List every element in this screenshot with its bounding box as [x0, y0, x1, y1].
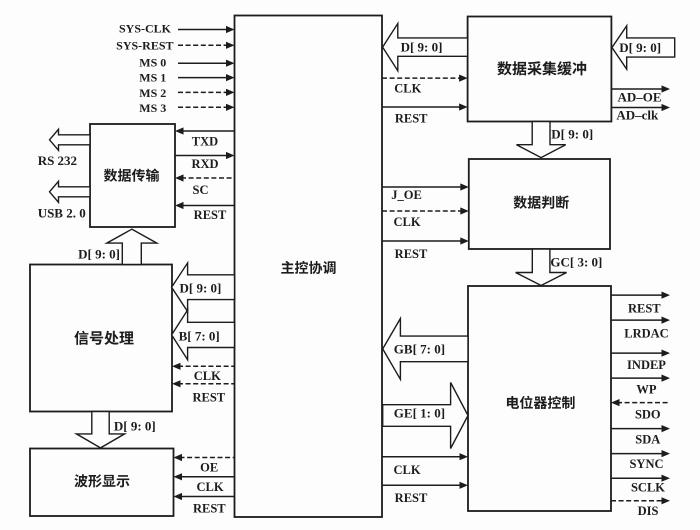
svg-text:RS 232: RS 232 [38, 153, 77, 168]
svg-text:D[ 9: 0]: D[ 9: 0] [401, 40, 443, 55]
svg-text:WP: WP [636, 382, 657, 396]
svg-text:MS 1: MS 1 [139, 70, 166, 84]
svg-text:CLK: CLK [196, 480, 223, 494]
svg-text:RXD: RXD [191, 157, 218, 171]
svg-text:D[ 9: 0]: D[ 9: 0] [114, 419, 156, 434]
svg-text:CLK: CLK [393, 215, 420, 229]
svg-text:D[ 9: 0]: D[ 9: 0] [619, 40, 661, 55]
svg-text:SC: SC [193, 183, 209, 197]
svg-text:REST: REST [395, 112, 428, 126]
svg-text:SDO: SDO [635, 407, 661, 421]
svg-text:GB[ 7: 0]: GB[ 7: 0] [394, 341, 445, 356]
svg-text:D[ 9: 0]: D[ 9: 0] [551, 126, 593, 141]
svg-text:B[ 7: 0]: B[ 7: 0] [179, 329, 220, 344]
svg-text:REST: REST [192, 391, 225, 405]
svg-text:REST: REST [193, 502, 226, 516]
svg-text:MS 3: MS 3 [139, 101, 166, 115]
svg-text:D[ 9: 0]: D[ 9: 0] [78, 247, 120, 262]
svg-text:CLK: CLK [393, 463, 420, 477]
svg-text:SYNC: SYNC [629, 457, 663, 471]
svg-text:D[ 9: 0]: D[ 9: 0] [180, 281, 222, 296]
svg-text:J_OE: J_OE [391, 188, 422, 202]
svg-text:AD–clk: AD–clk [616, 108, 659, 123]
svg-text:OE: OE [200, 461, 218, 475]
svg-text:SYS-REST: SYS-REST [116, 39, 173, 53]
svg-text:REST: REST [194, 208, 227, 222]
svg-text:LRDAC: LRDAC [624, 326, 668, 340]
svg-text:SCLK: SCLK [631, 481, 665, 495]
svg-text:DIS: DIS [638, 504, 659, 518]
svg-text:USB 2. 0: USB 2. 0 [38, 206, 86, 221]
svg-text:GC[ 3: 0]: GC[ 3: 0] [550, 254, 602, 269]
svg-text:GE[ 1: 0]: GE[ 1: 0] [394, 406, 445, 421]
svg-text:INDEP: INDEP [627, 358, 666, 372]
svg-text:MS 0: MS 0 [139, 55, 166, 69]
svg-text:TXD: TXD [192, 135, 218, 149]
svg-text:CLK: CLK [194, 369, 221, 383]
svg-text:AD–OE: AD–OE [617, 90, 661, 105]
svg-text:SDA: SDA [635, 432, 660, 446]
svg-text:CLK: CLK [394, 81, 421, 95]
svg-text:SYS-CLK: SYS-CLK [119, 22, 172, 36]
svg-text:REST: REST [395, 491, 428, 505]
svg-text:MS 2: MS 2 [139, 86, 166, 100]
svg-text:REST: REST [395, 247, 428, 261]
svg-text:REST: REST [628, 301, 661, 315]
